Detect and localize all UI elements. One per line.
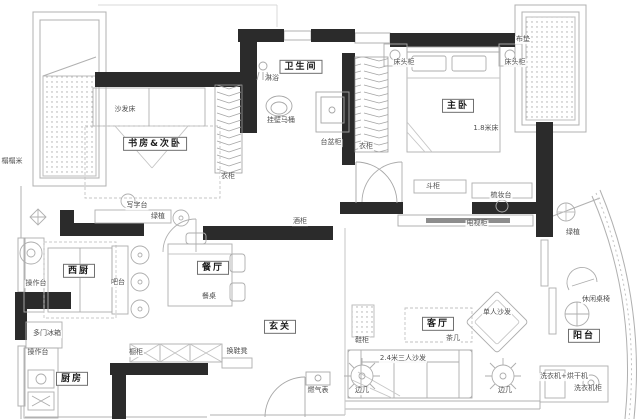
label-counter-west: 操作台: [25, 280, 48, 288]
label-plant-study: 绿植: [150, 213, 166, 221]
wardrobe-study: [215, 85, 242, 173]
label-wardrobe-study: 衣柜: [220, 173, 236, 181]
label-sideboard: 酒柜: [292, 218, 308, 226]
label-tea-table: 茶几: [445, 335, 461, 343]
wardrobe-hall: [355, 57, 388, 152]
room-label-dining: 餐厅: [197, 261, 229, 275]
label-counter-kitchen: 操作台: [27, 349, 50, 357]
room-label-balcony: 阳台: [568, 329, 600, 343]
label-basin-cabinet: 台盆柜: [320, 139, 343, 147]
label-plant-balcony: 绿植: [565, 229, 581, 237]
room-label-study: 书房&次卧: [123, 137, 187, 151]
cooktop-icon: [20, 242, 42, 264]
label-sofa-bed: 沙发床: [114, 106, 137, 114]
label-writing-desk: 写字台: [126, 202, 149, 210]
label-single-sofa: 单人沙发: [482, 309, 512, 317]
label-leisure-set: 休闲桌椅: [581, 296, 611, 304]
room-label-west-kitchen: 西厨: [63, 264, 95, 278]
sink: [28, 370, 54, 388]
bar-stool: [131, 300, 149, 318]
pillow: [412, 56, 446, 71]
label-bed-size: 1.8米床: [472, 125, 499, 133]
plant-icon: [30, 209, 46, 225]
single-sofa: [466, 291, 528, 353]
bar-stool: [131, 273, 149, 291]
label-bay-cushion: 布垫: [515, 36, 531, 44]
label-dressing-table: 梳妆台: [490, 192, 513, 200]
gas-meter-box: [306, 372, 330, 385]
label-cupboard: 橱柜: [128, 349, 144, 357]
label-shoe-bench: 换鞋凳: [226, 348, 249, 356]
label-shoe-cabinet: 鞋柜: [354, 337, 370, 345]
label-side-table-right: 边几: [497, 387, 513, 395]
toilet-icon: [266, 96, 292, 116]
label-bar-counter: 吧台: [110, 279, 126, 287]
label-tatami: 榻榻米: [1, 158, 24, 166]
leisure-chair: [567, 268, 597, 290]
label-tv-cabinet: 电视柜: [466, 220, 489, 228]
shower-icon: [259, 62, 267, 70]
label-side-table-left: 边几: [354, 387, 370, 395]
shoe-bench: [222, 358, 252, 368]
room-label-kitchen: 厨房: [56, 372, 88, 386]
label-toilet: 挂壁马桶: [266, 117, 296, 125]
label-nightstand-left: 床头柜: [393, 59, 416, 67]
plant-icon: [173, 210, 189, 226]
label-fridge: 多门冰箱: [32, 330, 62, 338]
label-nightstand-right: 床头柜: [504, 59, 527, 67]
floor-plan: 卫生间 书房&次卧 主卧 西厨 餐厅 玄关 客厅 阳台 厨房 沙发床 写字台 绿…: [0, 0, 640, 419]
room-label-living: 客厅: [422, 317, 454, 331]
entry-door-arc: [265, 377, 305, 417]
counter: [24, 348, 58, 418]
pillow: [452, 56, 486, 71]
label-gas-meter: 燃气表: [307, 387, 330, 395]
label-dining-table: 餐桌: [201, 293, 217, 301]
label-three-seat-sofa: 2.4米三人沙发: [379, 355, 427, 363]
label-shower: 淋浴: [264, 75, 280, 83]
room-label-bathroom: 卫生间: [279, 60, 322, 74]
bar-stool: [131, 246, 149, 264]
room-label-master: 主卧: [442, 99, 474, 113]
label-wardrobe-hall: 衣柜: [358, 143, 374, 151]
label-washer-dryer: 洗衣机+烘干机: [539, 373, 589, 381]
label-washer-cabinet: 洗衣机柜: [573, 385, 603, 393]
label-chest: 斗柜: [425, 183, 441, 191]
sliding-door-panel: [541, 240, 548, 286]
sliding-door-panel: [549, 288, 556, 334]
shoe-cabinet: [352, 305, 374, 337]
room-label-entry: 玄关: [264, 320, 296, 334]
